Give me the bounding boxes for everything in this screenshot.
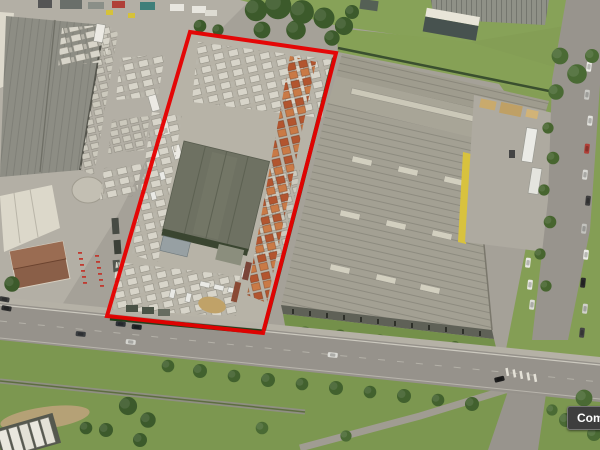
map-viewport[interactable]: Comme <box>0 0 600 450</box>
map-label-text: Comme <box>577 411 600 425</box>
aerial-photo[interactable] <box>0 0 600 450</box>
tank-pad <box>72 177 104 203</box>
map-label: Comme <box>567 406 600 430</box>
